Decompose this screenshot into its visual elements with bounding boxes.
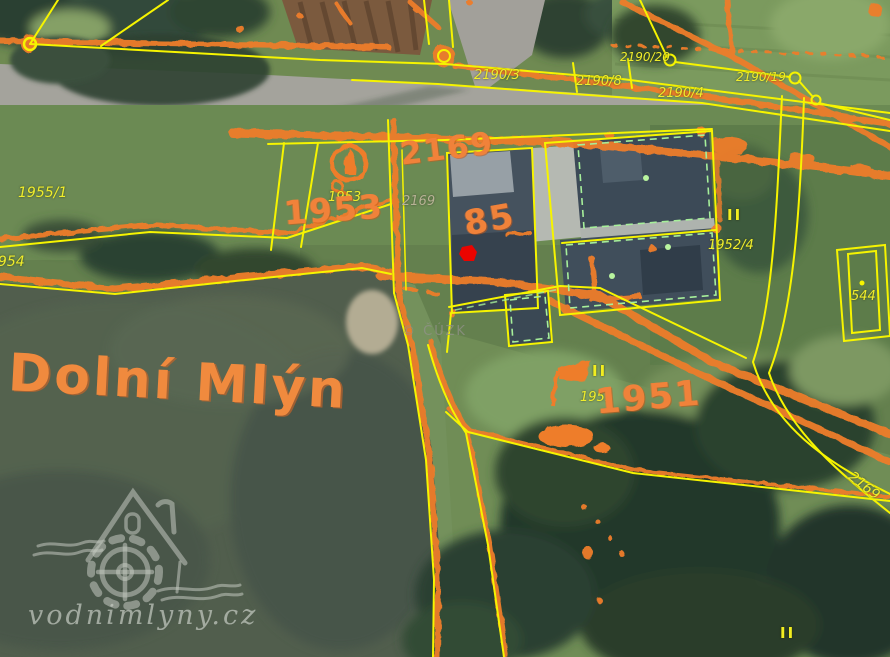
map-canvas[interactable]: 2190/3 2190/8 2190/20 2190/19 2190/4 195… <box>0 0 890 657</box>
watermill-logo-icon <box>0 0 890 657</box>
